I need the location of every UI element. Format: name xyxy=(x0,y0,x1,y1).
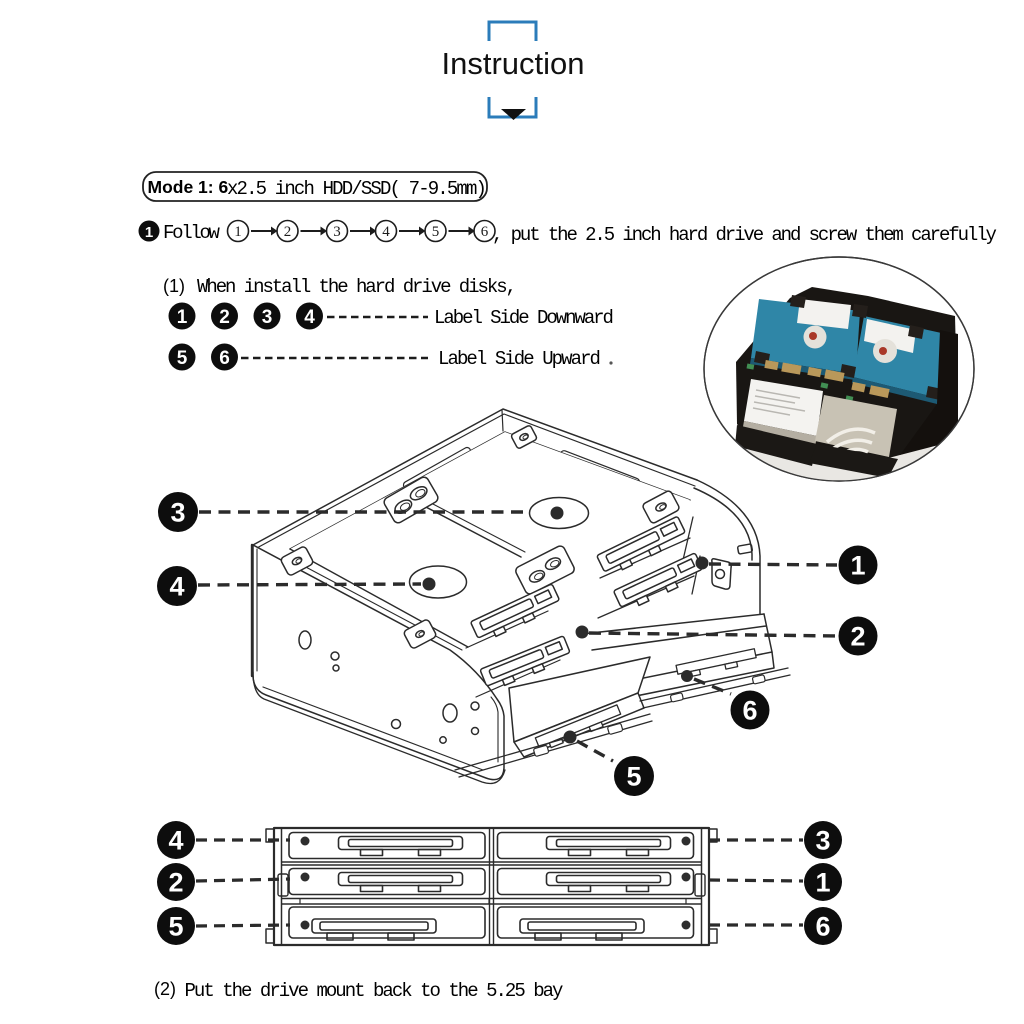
svg-text:Label Side Upward: Label Side Upward xyxy=(438,348,600,370)
svg-text:Label Side Downward: Label Side Downward xyxy=(434,307,613,329)
svg-text:1: 1 xyxy=(234,224,242,240)
svg-text:Mode 1: 6: Mode 1: 6 xyxy=(148,177,229,197)
svg-text:5: 5 xyxy=(168,912,183,942)
svg-text:4: 4 xyxy=(169,572,184,602)
svg-text:4: 4 xyxy=(304,307,315,328)
svg-text:, put the 2.5 inch hard drive: , put the 2.5 inch hard drive and screw … xyxy=(492,224,997,246)
svg-text:6: 6 xyxy=(815,912,830,942)
svg-text:Instruction: Instruction xyxy=(441,46,584,81)
svg-text:2: 2 xyxy=(850,622,865,652)
svg-text:When install the hard drive di: When install the hard drive disks, xyxy=(197,276,515,298)
svg-text:1: 1 xyxy=(850,551,865,581)
svg-text:3: 3 xyxy=(815,826,830,856)
svg-text:6: 6 xyxy=(481,224,489,240)
svg-text:3: 3 xyxy=(262,307,273,328)
svg-text:1: 1 xyxy=(145,224,153,241)
svg-text:3: 3 xyxy=(170,498,185,528)
svg-text:2: 2 xyxy=(284,224,292,240)
svg-text:4: 4 xyxy=(382,224,390,240)
svg-text:5: 5 xyxy=(177,348,188,369)
svg-text:(2): (2) xyxy=(154,979,176,999)
svg-text:1: 1 xyxy=(815,868,830,898)
svg-text:5: 5 xyxy=(432,224,440,240)
svg-text:5: 5 xyxy=(626,762,641,792)
svg-text:x2.5 inch HDD/SSD( 7-9.5mm): x2.5 inch HDD/SSD( 7-9.5mm) xyxy=(227,178,485,200)
svg-text:6: 6 xyxy=(219,348,230,369)
svg-text:2: 2 xyxy=(219,307,230,328)
svg-text:3: 3 xyxy=(333,224,341,240)
svg-text:Follow: Follow xyxy=(163,222,221,244)
svg-text:(1): (1) xyxy=(163,276,185,296)
svg-text:2: 2 xyxy=(168,868,183,898)
svg-text:1: 1 xyxy=(177,307,188,328)
svg-text:6: 6 xyxy=(742,696,757,726)
svg-text:Put the drive mount back to th: Put the drive mount back to the 5.25 bay xyxy=(185,980,564,1002)
svg-text:4: 4 xyxy=(168,826,183,856)
